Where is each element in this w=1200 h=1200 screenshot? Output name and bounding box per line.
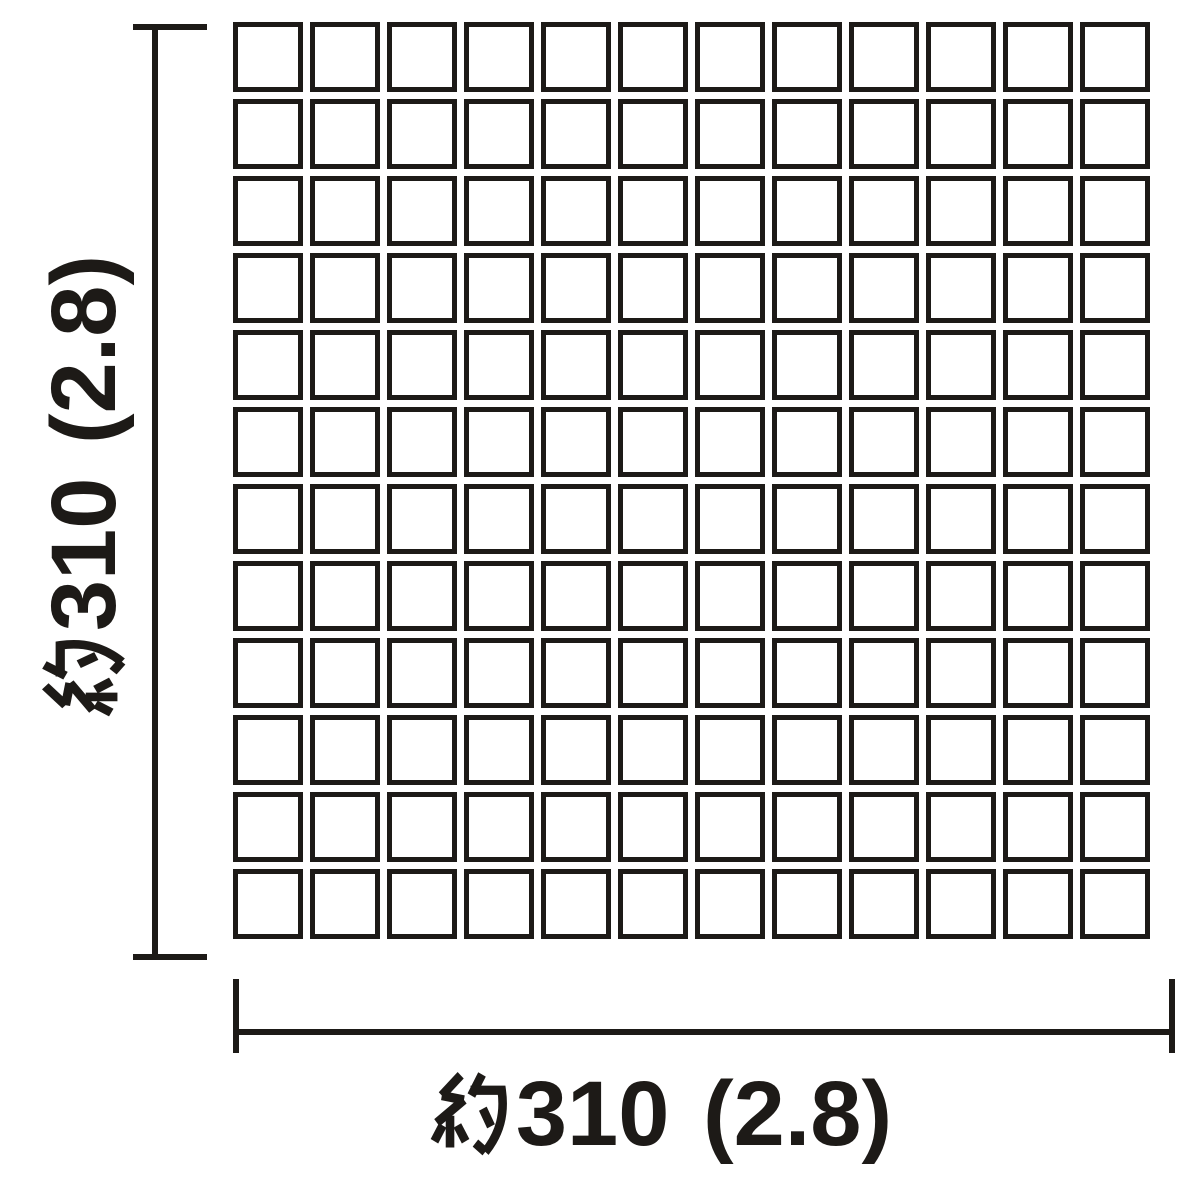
tile-cell (310, 330, 380, 400)
tile-cell (233, 253, 303, 323)
tile-cell (1003, 715, 1073, 785)
tile-cell (464, 253, 534, 323)
tile-cell (310, 638, 380, 708)
tile-cell (1003, 484, 1073, 554)
tile-cell (310, 99, 380, 169)
tile-cell (926, 253, 996, 323)
tile-cell (618, 869, 688, 939)
tile-cell (541, 869, 611, 939)
tile-cell (541, 253, 611, 323)
tile-cell (849, 407, 919, 477)
tile-cell (926, 484, 996, 554)
tile-cell (695, 407, 765, 477)
tile-cell (849, 484, 919, 554)
tile-cell (233, 330, 303, 400)
tile-cell (310, 792, 380, 862)
tile-cell (541, 715, 611, 785)
tile-cell (541, 22, 611, 92)
tile-cell (1003, 638, 1073, 708)
tile-cell (1003, 253, 1073, 323)
tile-cell (772, 99, 842, 169)
tile-cell (464, 407, 534, 477)
tile-cell (387, 330, 457, 400)
tile-cell (695, 253, 765, 323)
tile-cell (387, 638, 457, 708)
tile-cell (926, 22, 996, 92)
tile-cell (772, 484, 842, 554)
tile-cell (310, 253, 380, 323)
tile-cell (464, 99, 534, 169)
tile-cell (387, 407, 457, 477)
tile-cell (926, 715, 996, 785)
tile-cell (233, 561, 303, 631)
tile-cell (772, 792, 842, 862)
horizontal-dimension-left-tick (233, 979, 239, 1053)
tile-cell (541, 407, 611, 477)
tile-cell (387, 715, 457, 785)
tile-cell (849, 22, 919, 92)
tile-cell (1003, 176, 1073, 246)
tile-cell (387, 253, 457, 323)
tile-cell (1080, 561, 1150, 631)
tile-cell (772, 330, 842, 400)
tile-cell (233, 22, 303, 92)
tile-cell (464, 484, 534, 554)
tile-cell (926, 792, 996, 862)
tile-cell (1003, 407, 1073, 477)
tile-cell (541, 792, 611, 862)
tile-cell (310, 407, 380, 477)
tile-cell (387, 99, 457, 169)
tile-cell (926, 407, 996, 477)
tile-cell (387, 561, 457, 631)
tile-cell (849, 638, 919, 708)
tile-cell (1080, 22, 1150, 92)
horizontal-dimension-right-tick (1169, 979, 1175, 1053)
tile-cell (310, 22, 380, 92)
tile-cell (387, 869, 457, 939)
tile-cell (695, 792, 765, 862)
tile-cell (695, 869, 765, 939)
tile-cell (695, 176, 765, 246)
horizontal-dimension-label: 約 310 (2.8) (428, 1068, 892, 1160)
tile-cell (1003, 99, 1073, 169)
tile-cell (772, 407, 842, 477)
tile-cell (849, 792, 919, 862)
tile-cell (926, 330, 996, 400)
tile-cell (310, 561, 380, 631)
tile-cell (1080, 792, 1150, 862)
tile-cell (233, 792, 303, 862)
tile-cell (772, 715, 842, 785)
tile-cell (233, 484, 303, 554)
tile-cell (772, 638, 842, 708)
tile-cell (849, 253, 919, 323)
tile-cell (1003, 22, 1073, 92)
yaku-kanji-glyph (40, 637, 128, 719)
tile-cell (695, 561, 765, 631)
tile-cell (618, 792, 688, 862)
tile-sheet-diagram: 約 310 (2.8) 約 310 (2.8) (0, 0, 1200, 1200)
tile-cell (464, 22, 534, 92)
tile-cell (926, 638, 996, 708)
tile-cell (695, 484, 765, 554)
tile-cell (541, 99, 611, 169)
tile-cell (1080, 176, 1150, 246)
tile-cell (1080, 869, 1150, 939)
tile-cell (310, 484, 380, 554)
tile-cell (464, 638, 534, 708)
tile-cell (1080, 253, 1150, 323)
tile-cell (695, 330, 765, 400)
tile-cell (926, 99, 996, 169)
horizontal-dimension-line (233, 1029, 1175, 1035)
tile-cell (849, 99, 919, 169)
tile-cell (695, 638, 765, 708)
tile-cell (387, 176, 457, 246)
tile-cell (849, 561, 919, 631)
tile-cell (849, 715, 919, 785)
tile-cell (387, 792, 457, 862)
tile-cell (541, 330, 611, 400)
tile-cell (618, 561, 688, 631)
tile-cell (464, 176, 534, 246)
tile-cell (618, 638, 688, 708)
tile-cell (618, 22, 688, 92)
vertical-dimension-value: 310 (2.8) (38, 255, 130, 631)
tile-cell (849, 869, 919, 939)
tile-cell (464, 715, 534, 785)
tile-cell (1080, 330, 1150, 400)
tile-cell (618, 330, 688, 400)
tile-cell (233, 715, 303, 785)
tile-cell (772, 253, 842, 323)
tile-cell (1080, 715, 1150, 785)
tile-cell (1080, 99, 1150, 169)
tile-cell (772, 176, 842, 246)
tile-cell (233, 99, 303, 169)
tile-cell (310, 869, 380, 939)
tile-cell (618, 715, 688, 785)
tile-cell (926, 561, 996, 631)
tile-cell (618, 484, 688, 554)
tile-cell (1003, 561, 1073, 631)
tile-cell (618, 99, 688, 169)
tile-cell (1003, 330, 1073, 400)
tile-cell (233, 869, 303, 939)
tile-cell (695, 99, 765, 169)
tile-cell (772, 869, 842, 939)
tile-cell (233, 407, 303, 477)
tile-cell (233, 638, 303, 708)
tile-cell (926, 869, 996, 939)
tile-cell (1080, 407, 1150, 477)
tile-cell (772, 22, 842, 92)
tile-cell (541, 638, 611, 708)
horizontal-dimension-value: 310 (2.8) (516, 1068, 892, 1160)
vertical-dimension-line (152, 24, 158, 960)
vertical-dimension-bottom-tick (133, 954, 207, 960)
tile-cell (541, 176, 611, 246)
tile-cell (233, 176, 303, 246)
tile-cell (849, 176, 919, 246)
tile-cell (618, 176, 688, 246)
tile-cell (387, 484, 457, 554)
tile-cell (618, 253, 688, 323)
tile-cell (464, 869, 534, 939)
vertical-dimension-top-tick (133, 24, 207, 30)
tile-cell (387, 22, 457, 92)
tile-cell (1080, 484, 1150, 554)
tile-cell (1003, 792, 1073, 862)
tile-cell (464, 561, 534, 631)
tile-cell (541, 561, 611, 631)
tile-cell (541, 484, 611, 554)
tile-cell (310, 176, 380, 246)
tile-cell (695, 715, 765, 785)
vertical-dimension-label: 約 310 (2.8) (38, 255, 130, 719)
yaku-kanji-glyph (428, 1070, 510, 1158)
tile-cell (1080, 638, 1150, 708)
tile-cell (695, 22, 765, 92)
tile-cell (849, 330, 919, 400)
tile-cell (772, 561, 842, 631)
mosaic-tile-grid (233, 22, 1150, 939)
tile-cell (464, 330, 534, 400)
tile-cell (618, 407, 688, 477)
tile-cell (926, 176, 996, 246)
tile-cell (310, 715, 380, 785)
tile-cell (1003, 869, 1073, 939)
tile-cell (464, 792, 534, 862)
